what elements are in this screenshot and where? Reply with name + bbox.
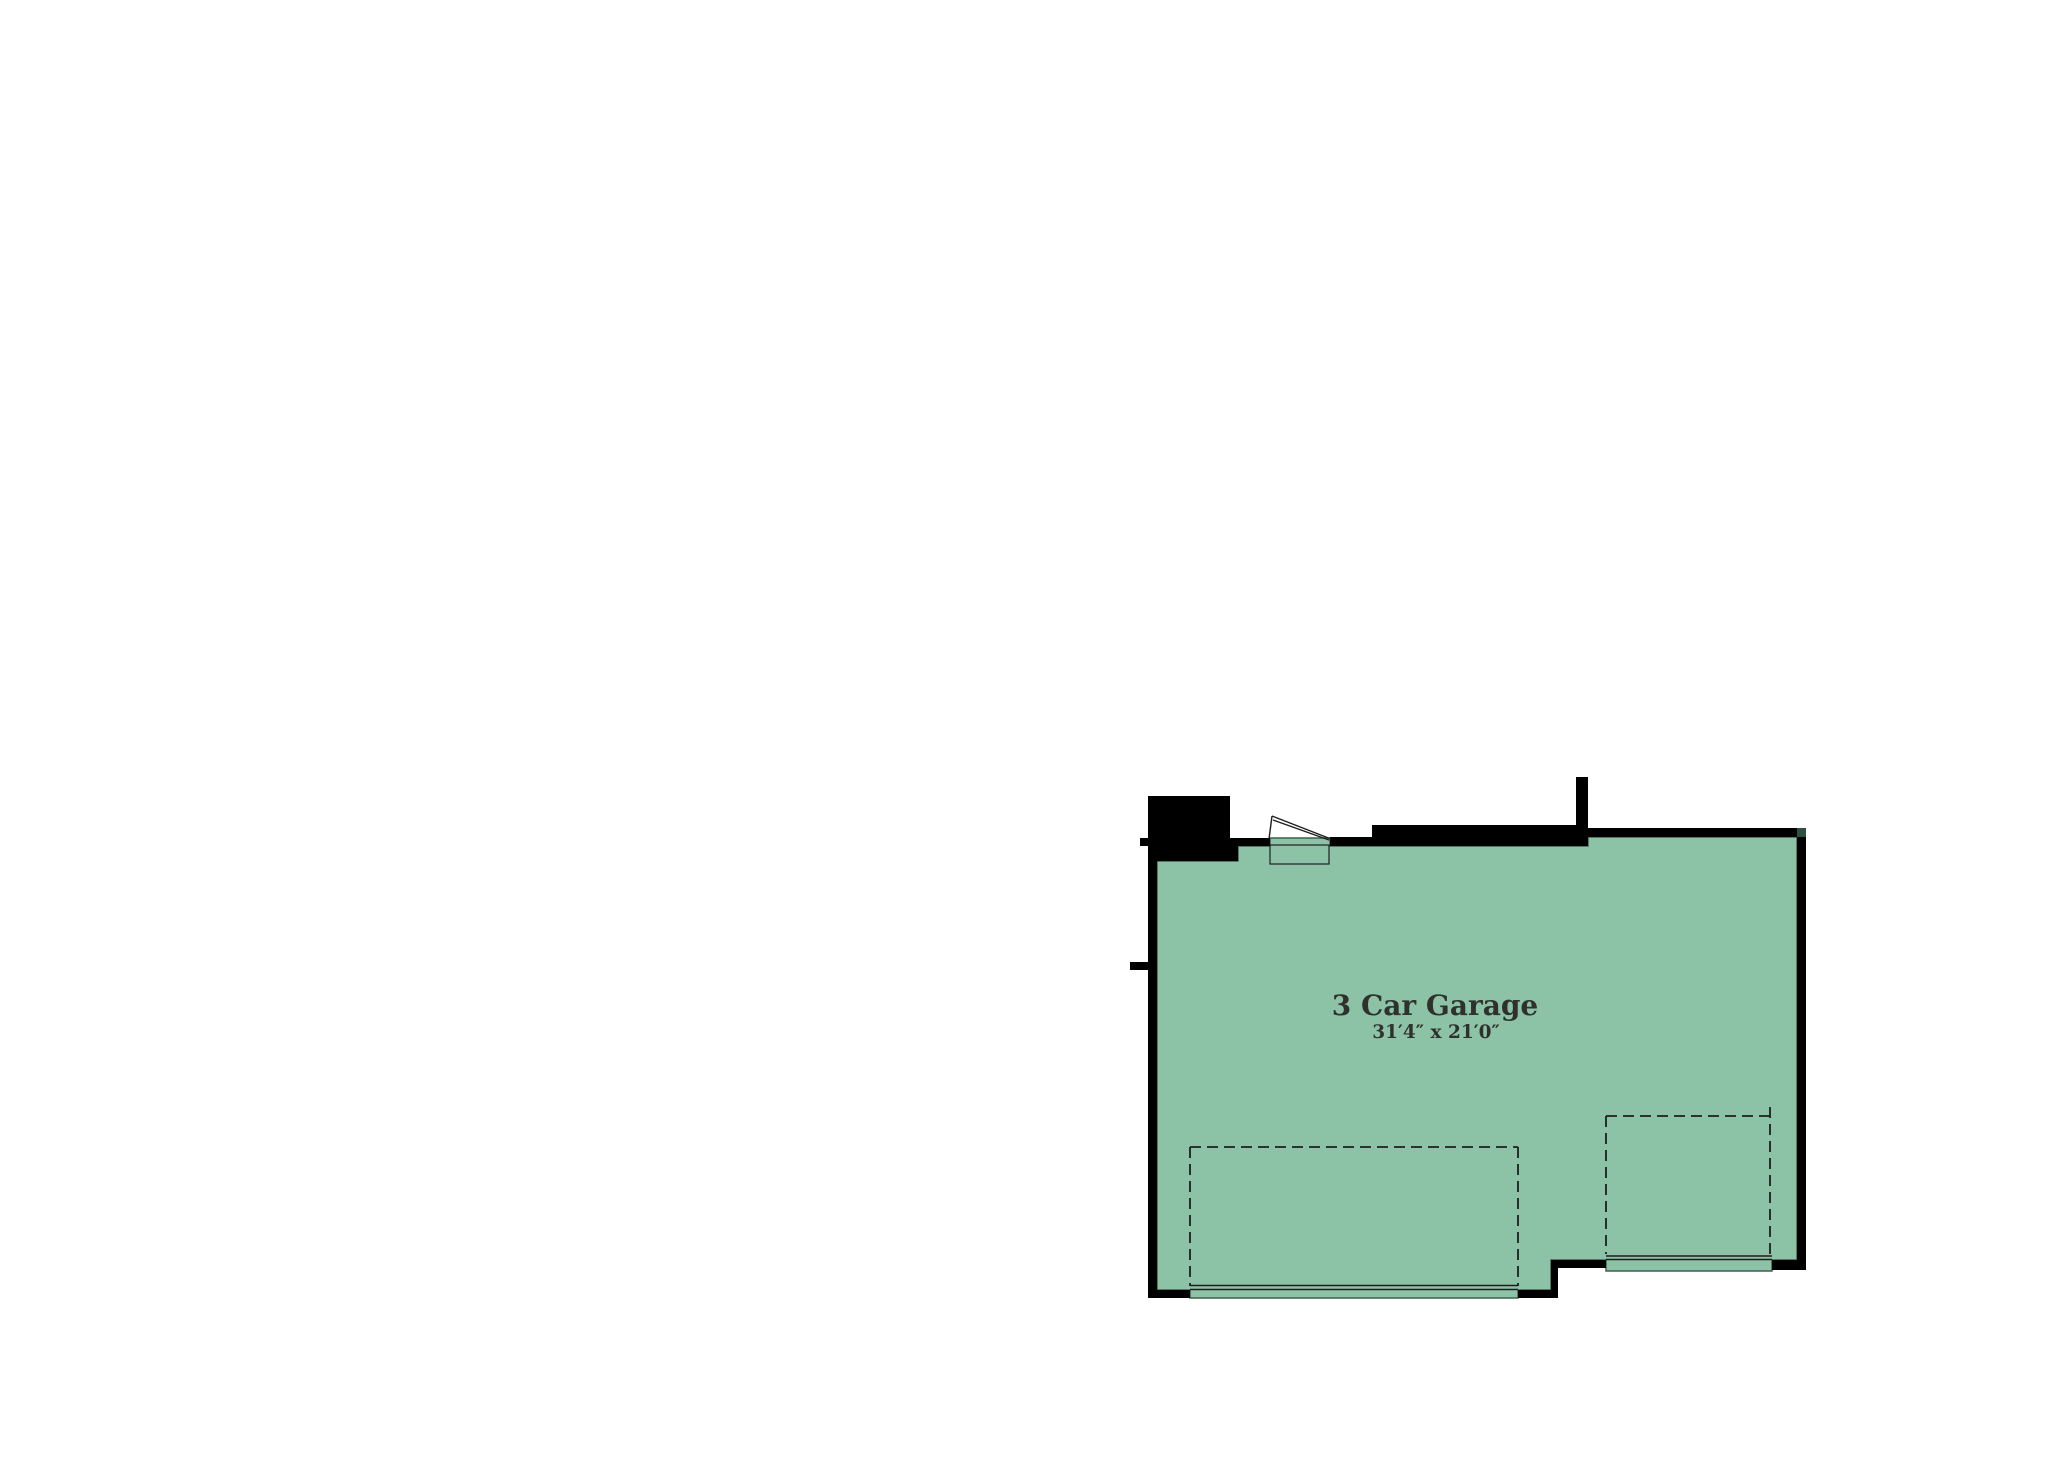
wall-top-left-strip bbox=[1140, 838, 1270, 846]
wall-bottom-left bbox=[1148, 1290, 1190, 1298]
entry-door-jamb-line bbox=[1269, 816, 1272, 839]
wall-top-door-right bbox=[1330, 837, 1372, 846]
wall-corner-notch bbox=[1797, 828, 1806, 837]
room-label: 3 Car Garage bbox=[1332, 989, 1539, 1022]
wall-left bbox=[1148, 838, 1157, 1298]
room-dimensions: 31′4″ x 21′0″ bbox=[1372, 1022, 1499, 1043]
garage-room-fill bbox=[1157, 837, 1797, 1298]
entry-door-leaf-inner-line bbox=[1273, 820, 1329, 840]
wall-top-right bbox=[1588, 828, 1797, 837]
wall-interior-block bbox=[1148, 846, 1238, 861]
floorplan-page: 3 Car Garage 31′4″ x 21′0″ bbox=[0, 0, 2069, 1483]
wall-pilaster-top-left bbox=[1148, 796, 1230, 838]
floorplan-drawing: 3 Car Garage 31′4″ x 21′0″ bbox=[0, 0, 2069, 1483]
entry-door-leaf-outer-line bbox=[1272, 816, 1331, 839]
wall-bottom-mid bbox=[1558, 1260, 1606, 1268]
wall-tick-left bbox=[1130, 962, 1148, 970]
wall-bottom-right bbox=[1772, 1260, 1806, 1270]
wall-top-thick-bar bbox=[1372, 825, 1588, 846]
wall-right bbox=[1797, 837, 1806, 1270]
wall-bottom-left-mid bbox=[1518, 1290, 1558, 1298]
wall-stub-up bbox=[1576, 777, 1588, 825]
